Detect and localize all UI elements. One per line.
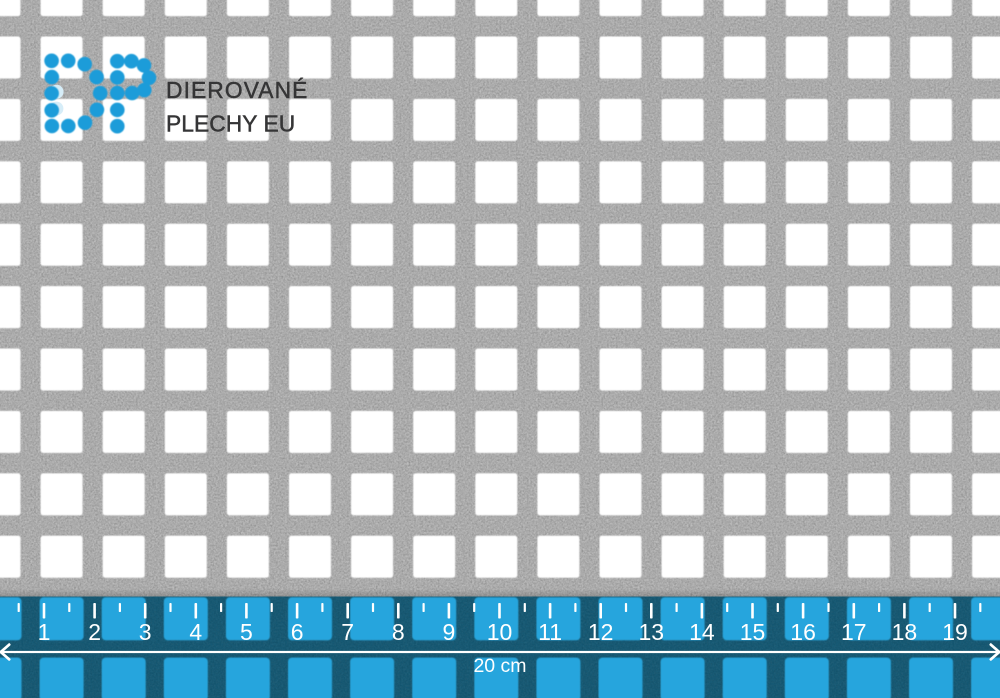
svg-text:12: 12 xyxy=(588,619,614,645)
svg-text:8: 8 xyxy=(392,619,405,645)
svg-text:14: 14 xyxy=(689,619,715,645)
svg-text:PLECHY EU: PLECHY EU xyxy=(166,111,295,137)
svg-text:10: 10 xyxy=(487,619,513,645)
svg-text:19: 19 xyxy=(942,619,968,645)
svg-text:20 cm: 20 cm xyxy=(473,655,526,677)
svg-text:18: 18 xyxy=(892,619,918,645)
svg-text:5: 5 xyxy=(240,619,253,645)
svg-text:13: 13 xyxy=(639,619,665,645)
svg-text:DIEROVANÉ: DIEROVANÉ xyxy=(166,77,309,103)
svg-text:4: 4 xyxy=(189,619,202,645)
svg-text:1: 1 xyxy=(38,619,51,645)
svg-text:15: 15 xyxy=(740,619,766,645)
svg-text:2: 2 xyxy=(88,619,101,645)
svg-text:3: 3 xyxy=(139,619,152,645)
svg-text:9: 9 xyxy=(443,619,456,645)
svg-text:17: 17 xyxy=(841,619,867,645)
svg-text:11: 11 xyxy=(538,619,562,645)
svg-text:16: 16 xyxy=(790,619,816,645)
svg-text:6: 6 xyxy=(291,619,304,645)
svg-text:7: 7 xyxy=(341,619,354,645)
